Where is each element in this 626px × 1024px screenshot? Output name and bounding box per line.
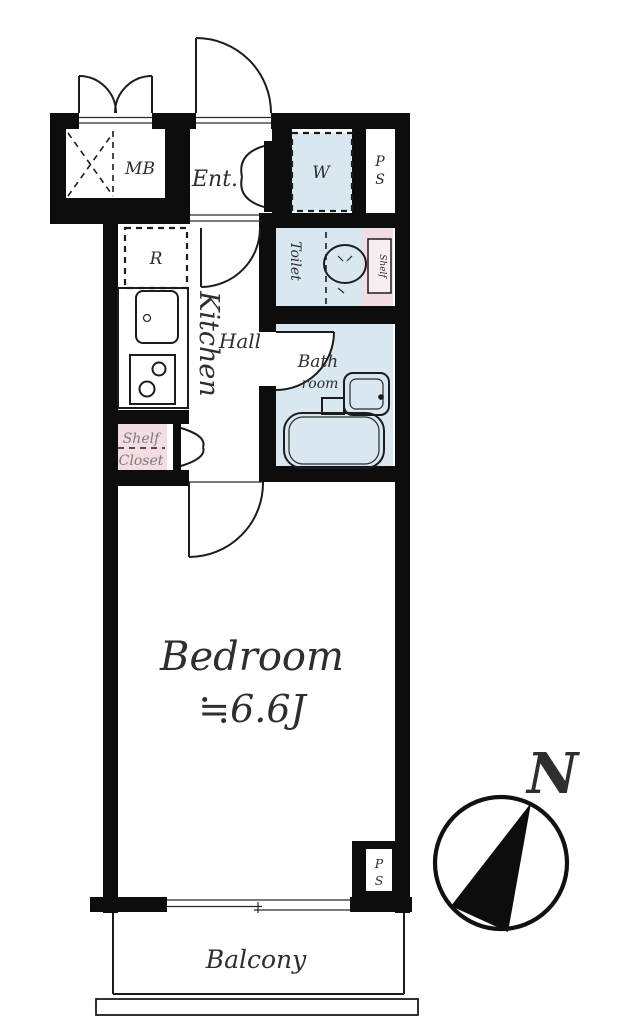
right-outer-wall xyxy=(395,113,410,913)
shoe-cabinet-panel xyxy=(264,141,272,212)
north-needle xyxy=(451,803,531,932)
toilet-left-wall xyxy=(259,213,276,310)
closet-door-swing xyxy=(181,447,204,466)
mb-door-opening xyxy=(79,113,152,129)
stove-burner xyxy=(153,363,166,376)
hall-door-swing xyxy=(201,228,260,287)
balcony-label: Balcony xyxy=(205,945,307,974)
entrance-door-swing xyxy=(196,38,271,113)
bath-left-wall-bottom xyxy=(259,386,276,470)
shoe-cabinet-door-swing xyxy=(241,177,264,207)
bathroom-label-line1: Bath xyxy=(297,352,338,372)
hall-label: Hall xyxy=(218,329,261,353)
entrance-washer-divider-wall xyxy=(272,129,292,213)
bedroom-label: Bedroom xyxy=(159,634,344,680)
ps-top-label-s: S xyxy=(375,172,385,188)
floor-plan-page: N MB Ent. W P S R Kitchen Hall Toilet Sh… xyxy=(0,0,626,1024)
stove-burner xyxy=(140,382,155,397)
wall-below-washer-ps xyxy=(272,213,395,228)
balcony-window xyxy=(167,897,350,913)
entrance-door-opening xyxy=(196,113,271,129)
hall-door xyxy=(201,228,260,287)
toilet-bath-divider-wall xyxy=(259,306,395,324)
bedroom-door-swing xyxy=(189,482,263,557)
bedroom-size-label: ≒6.6J xyxy=(198,687,307,731)
bathroom-label-line2: room xyxy=(302,376,339,392)
mb-left-wall xyxy=(50,113,66,212)
left-outer-wall xyxy=(103,198,118,913)
bottom-wall-right xyxy=(350,897,412,912)
entrance-label: Ent. xyxy=(191,167,238,192)
bedroom-top-left-wall xyxy=(103,470,189,486)
closet-top-wall xyxy=(103,410,189,424)
compass: N xyxy=(435,741,580,932)
mb-door-swing-left xyxy=(79,76,116,113)
compass-north-label: N xyxy=(525,741,580,807)
kitchen-sink xyxy=(136,291,178,343)
bath-left-wall-top-stub xyxy=(259,324,276,332)
ps-bottom-label-s: S xyxy=(375,873,384,888)
toilet-label: Toilet xyxy=(287,241,303,281)
washer-label: W xyxy=(312,163,331,183)
ps-bottom-label-p: P xyxy=(374,856,384,871)
kitchen-counter xyxy=(118,288,188,408)
entrance-door xyxy=(196,38,271,113)
mb-label: MB xyxy=(124,159,155,179)
shelf-closet-label-line1: Shelf xyxy=(123,431,162,447)
ps-top-label-p: P xyxy=(374,154,385,170)
bottom-wall-left xyxy=(90,897,167,912)
shelf-closet-label-line2: Closet xyxy=(119,453,164,469)
mb-area xyxy=(68,131,113,197)
bedroom-door xyxy=(189,482,263,557)
toilet-shelf-label: Shelf xyxy=(377,254,387,279)
sink-drain xyxy=(144,315,151,322)
closet-door-panel xyxy=(173,424,181,470)
stove xyxy=(130,355,175,404)
washbasin-faucet xyxy=(378,394,384,400)
floor-plan-drawing: N MB Ent. W P S R Kitchen Hall Toilet Sh… xyxy=(0,0,626,1024)
refrigerator-label: R xyxy=(149,249,163,269)
shoe-cabinet-door-swing xyxy=(241,146,264,177)
closet-door-swing xyxy=(181,428,204,447)
balcony-slab xyxy=(96,999,418,1015)
mb-entrance-divider-wall xyxy=(165,129,190,224)
mb-door-swing-right xyxy=(115,76,152,113)
washer-ps-divider-wall xyxy=(352,129,366,213)
mb-double-doors xyxy=(79,76,152,113)
